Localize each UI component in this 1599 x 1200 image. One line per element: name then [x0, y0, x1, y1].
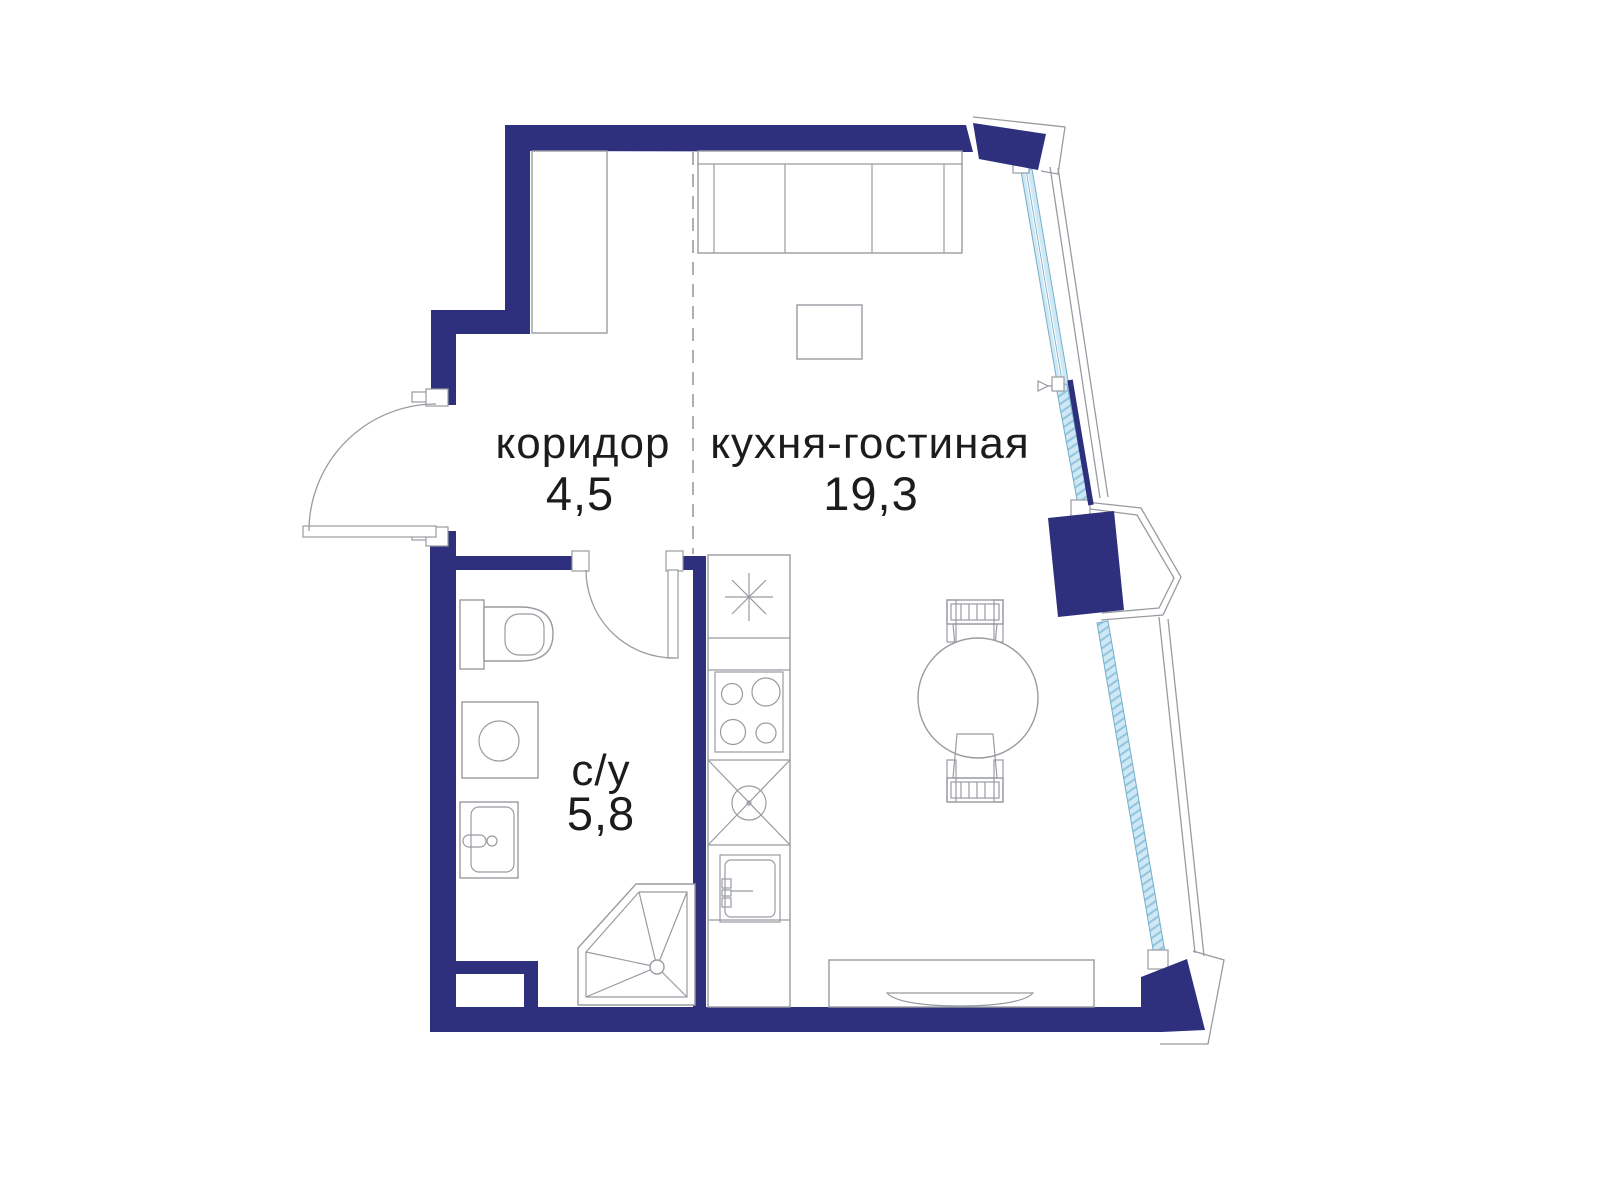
shower-drain: [650, 960, 664, 974]
wall-niche-vertical: [524, 961, 538, 1010]
floor-plan-page: коридор 4,5 кухня-гостиная 19,3 с/у 5,8: [0, 0, 1599, 1200]
wall-corner-bottom-right: [1141, 959, 1205, 1032]
window-lower-hatched: [1097, 621, 1165, 955]
window-junction-block: [1052, 377, 1064, 391]
wall-bathroom-top: [455, 556, 578, 570]
washing-machine: [462, 702, 538, 778]
room-label-bathroom: с/у 5,8: [567, 746, 635, 840]
wall-pier-middle-right: [1048, 511, 1124, 617]
kitchen-living-area: 19,3: [823, 467, 918, 520]
furniture: [460, 151, 1094, 1007]
dining-table: [918, 638, 1038, 758]
window-vent-arrow: [1038, 381, 1048, 391]
sofa: [698, 151, 962, 253]
wardrobe: [532, 151, 607, 333]
wall-bottom: [430, 1007, 1162, 1032]
washbasin: [460, 802, 518, 878]
coffee-table: [797, 305, 862, 359]
shower: [578, 884, 695, 1005]
room-label-corridor: коридор 4,5: [496, 419, 671, 520]
facade-line-lower-2: [1168, 619, 1204, 956]
entrance-door-swing-arc: [309, 404, 436, 531]
bathroom-door-swing-arc: [586, 570, 676, 658]
corridor-name: коридор: [496, 419, 671, 468]
bathroom-door: [572, 551, 683, 658]
kitchen-block: [708, 555, 790, 1007]
wall-left-upper: [505, 125, 530, 334]
bathroom-area: 5,8: [567, 787, 635, 840]
kitchen-living-name: кухня-гостиная: [710, 419, 1029, 468]
wall-block-top-right: [973, 123, 1046, 170]
entrance-door-leaf: [303, 526, 436, 537]
entrance-door-jamb-top: [426, 389, 448, 406]
refrigerator-symbol: [725, 573, 773, 621]
floor-plan: коридор 4,5 кухня-гостиная 19,3 с/у 5,8: [0, 0, 1599, 1200]
tv-console: [829, 960, 1094, 1007]
dining-set: [918, 600, 1038, 802]
room-label-kitchen-living: кухня-гостиная 19,3: [710, 419, 1029, 520]
entrance-door: [303, 389, 448, 546]
corridor-area: 4,5: [546, 467, 614, 520]
bathroom-door-leaf: [668, 570, 678, 658]
bathroom-door-jamb-left: [572, 551, 589, 571]
window-sill-bottom: [1148, 950, 1168, 969]
toilet: [460, 600, 553, 669]
wall-left-lower: [430, 531, 456, 1032]
bathroom-door-jamb-right: [666, 551, 683, 571]
facade-line-lower-1: [1159, 617, 1195, 953]
wall-top: [505, 125, 973, 152]
